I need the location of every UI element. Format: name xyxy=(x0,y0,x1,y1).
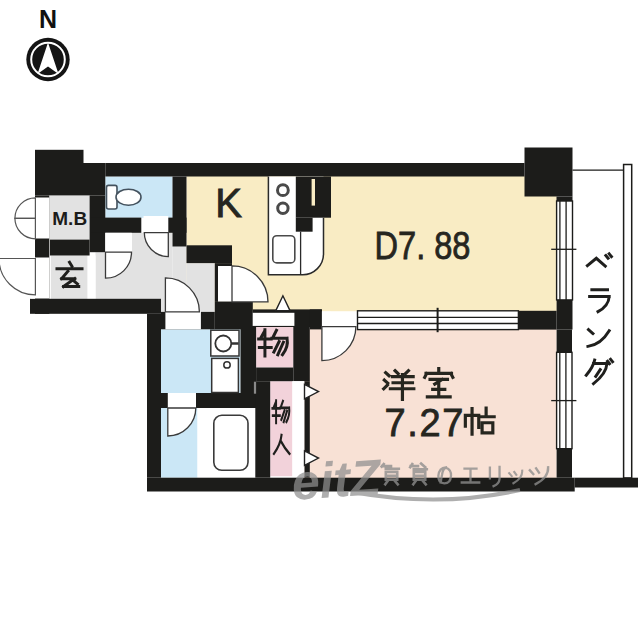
svg-text:N: N xyxy=(39,5,57,33)
svg-text:K: K xyxy=(215,181,242,225)
svg-text:M.B: M.B xyxy=(52,208,87,229)
svg-text:7.27: 7.27 xyxy=(385,402,465,444)
svg-text:eitZ: eitZ xyxy=(290,449,385,511)
svg-text:D7. 88: D7. 88 xyxy=(375,225,471,267)
